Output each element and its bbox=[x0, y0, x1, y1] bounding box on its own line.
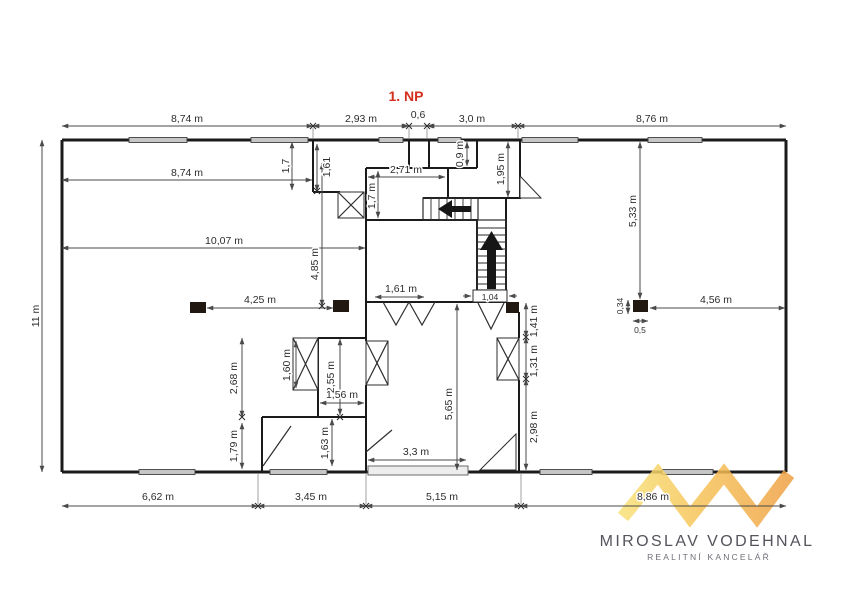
dim-label: 4,25 m bbox=[244, 294, 276, 306]
dim-label: 8,76 m bbox=[636, 113, 668, 125]
door-room-b-leaf bbox=[263, 426, 291, 466]
staircase-horizontal bbox=[423, 198, 478, 220]
dim-label: 1,61 bbox=[321, 157, 333, 178]
door-bottom-right-swing bbox=[480, 434, 516, 470]
window bbox=[540, 470, 592, 475]
door-landing-swing bbox=[478, 303, 504, 329]
dim-label: 10,07 m bbox=[205, 235, 243, 247]
window bbox=[270, 470, 327, 475]
dim-label: 8,86 m bbox=[637, 491, 669, 503]
dim-label: 3,3 m bbox=[403, 446, 430, 458]
dim-label: 2,68 m bbox=[228, 362, 240, 394]
door-double-swing-left bbox=[383, 302, 409, 325]
junction-ticks bbox=[239, 123, 529, 509]
column bbox=[633, 300, 648, 312]
dim-label: 0,9 m bbox=[454, 141, 466, 168]
dim-label: 8,74 m bbox=[171, 167, 203, 179]
dim-label: 5,15 m bbox=[426, 491, 458, 503]
window bbox=[129, 138, 187, 143]
windows bbox=[129, 138, 713, 476]
dim-label: 1,95 m bbox=[495, 153, 507, 185]
window bbox=[379, 138, 403, 143]
dim-label: 1,04 bbox=[482, 292, 499, 302]
outer-walls bbox=[62, 140, 786, 472]
dim-label: 5,65 m bbox=[443, 388, 455, 420]
page-title: 1. NP bbox=[388, 88, 423, 104]
dim-label: 4,56 m bbox=[700, 294, 732, 306]
dim-label: 5,33 m bbox=[627, 195, 639, 227]
dim-label: 2,93 m bbox=[345, 113, 377, 125]
dim-label: 2,71 m bbox=[390, 164, 422, 176]
window bbox=[251, 138, 308, 143]
dim-label: 1,31 m bbox=[528, 345, 540, 377]
dim-label: 3,0 m bbox=[459, 113, 486, 125]
logo-tagline: REALITNÍ KANCELÁŘ bbox=[647, 552, 771, 562]
dim-label: 1,61 m bbox=[385, 283, 417, 295]
dim-label: 1,7 bbox=[280, 159, 292, 174]
column bbox=[333, 300, 349, 312]
dim-label: 4,85 m bbox=[309, 248, 321, 280]
stair-direction-arrow-up bbox=[480, 231, 503, 289]
door-double-swing-right bbox=[409, 302, 435, 325]
window bbox=[522, 138, 578, 143]
dim-label: 3,45 m bbox=[295, 491, 327, 503]
dim-label: 0,6 bbox=[411, 109, 426, 121]
window bbox=[662, 470, 713, 475]
logo-text: MIROSLAV VODEHNAL REALITNÍ KANCELÁŘ bbox=[600, 533, 815, 562]
logo-company-name: MIROSLAV VODEHNAL bbox=[600, 533, 815, 550]
column bbox=[190, 302, 206, 313]
door-mid-right bbox=[497, 338, 519, 380]
dim-label: 0,34 bbox=[615, 297, 625, 314]
door-entrance-leaf bbox=[366, 430, 392, 452]
dim-label: 1,41 m bbox=[528, 305, 540, 337]
staircase-vertical bbox=[473, 220, 507, 302]
dim-label: 6,62 m bbox=[142, 491, 174, 503]
floor-plan-canvas: 8,74 m 2,93 m 0,6 3,0 m 8,76 m 11 m 8,74… bbox=[0, 0, 841, 595]
dim-label: 1,7 m bbox=[366, 183, 378, 210]
dim-label: 1,60 m bbox=[281, 349, 293, 381]
dim-label: 1,79 m bbox=[228, 430, 240, 462]
door-top-left bbox=[338, 192, 364, 218]
window bbox=[139, 470, 195, 475]
stair-direction-arrow-left bbox=[438, 200, 471, 218]
entrance-sill bbox=[368, 466, 468, 475]
dim-label: 1,63 m bbox=[319, 427, 331, 459]
dim-label: 1,56 m bbox=[326, 389, 358, 401]
door-room-e-swing bbox=[520, 176, 541, 198]
door-room-a-left bbox=[293, 338, 318, 390]
door-mid-left bbox=[366, 341, 388, 385]
dim-label: 0,5 bbox=[634, 325, 646, 335]
dim-label: 11 m bbox=[30, 304, 42, 327]
dim-label: 8,74 m bbox=[171, 113, 203, 125]
interior-walls bbox=[262, 140, 520, 472]
window bbox=[648, 138, 702, 143]
dim-label: 2,98 m bbox=[528, 411, 540, 443]
column bbox=[506, 302, 519, 313]
